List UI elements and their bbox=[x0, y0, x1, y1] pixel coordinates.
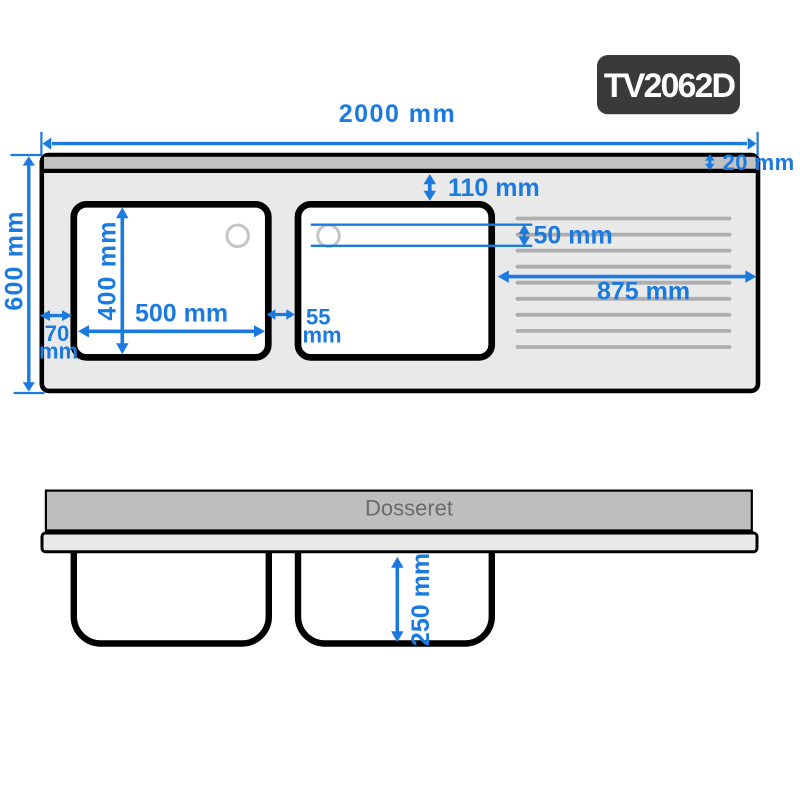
svg-text:600 mm: 600 mm bbox=[1, 210, 29, 310]
svg-text:20 mm: 20 mm bbox=[723, 150, 795, 175]
svg-text:50 mm: 50 mm bbox=[534, 222, 613, 250]
svg-text:TV2062D: TV2062D bbox=[604, 67, 736, 105]
svg-text:Dosseret: Dosseret bbox=[365, 496, 453, 521]
svg-text:110 mm: 110 mm bbox=[448, 174, 540, 202]
svg-text:mm: mm bbox=[39, 338, 78, 363]
svg-text:875 mm: 875 mm bbox=[597, 278, 690, 306]
svg-text:500 mm: 500 mm bbox=[135, 300, 228, 328]
svg-text:2000 mm: 2000 mm bbox=[339, 100, 457, 128]
svg-text:400 mm: 400 mm bbox=[94, 220, 122, 320]
svg-text:250 mm: 250 mm bbox=[407, 553, 435, 646]
svg-text:mm: mm bbox=[303, 323, 342, 348]
